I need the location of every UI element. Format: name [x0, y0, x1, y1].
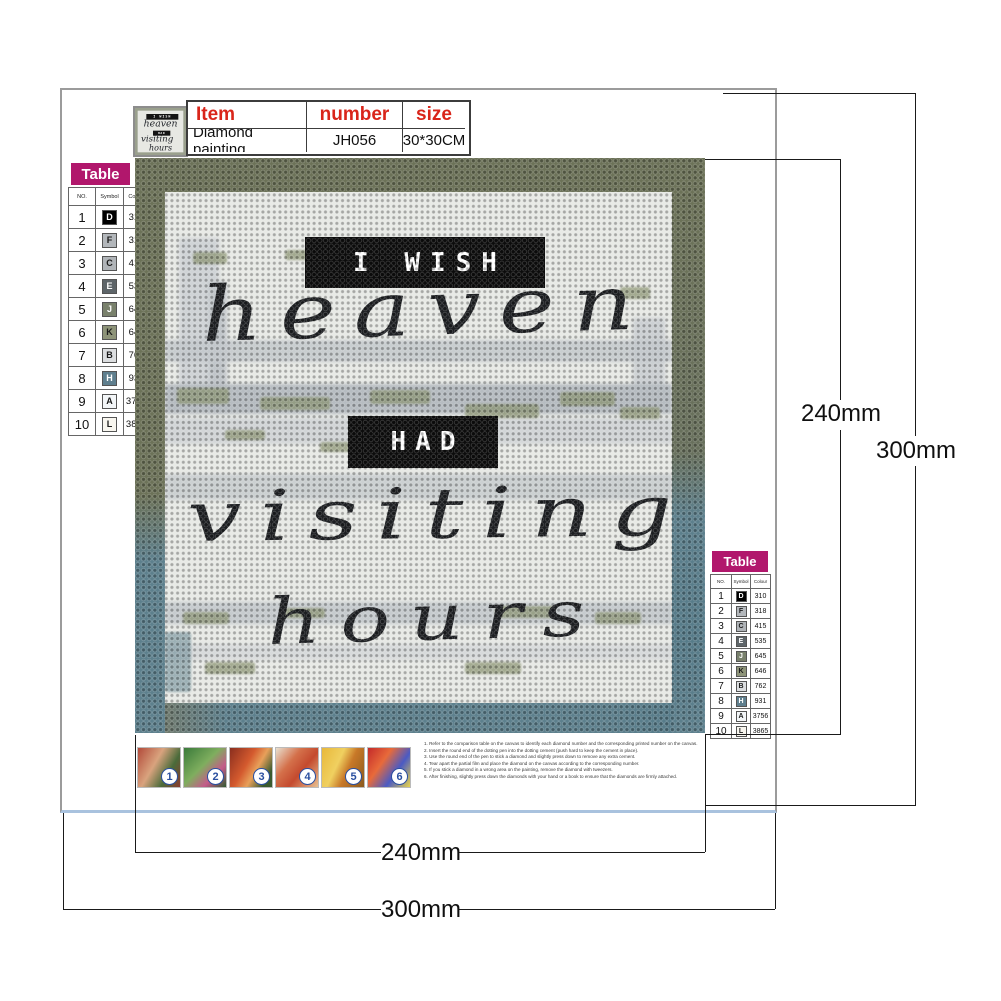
color-row-number: 2: [711, 604, 731, 618]
color-row-number: 3: [711, 619, 731, 633]
color-row-symbol-cell: K: [731, 664, 750, 678]
dim-240w-riser-left: [135, 735, 136, 852]
symbol-swatch: E: [102, 279, 117, 294]
item-value: Diamond painting: [188, 129, 307, 152]
instruction-line: 6. After finishing, slightly press down …: [424, 774, 706, 781]
symbol-swatch: A: [102, 394, 117, 409]
color-row-code: 645: [750, 649, 770, 663]
color-row-number: 4: [711, 634, 731, 648]
color-row-code: 762: [750, 679, 770, 693]
number-header: number: [307, 102, 403, 129]
color-row: 6K646: [711, 663, 770, 678]
dim-300h-line-upper: [915, 93, 916, 436]
symbol-swatch: C: [102, 256, 117, 271]
symbol-swatch: H: [102, 371, 117, 386]
item-header: Item: [188, 102, 307, 129]
symbol-swatch: L: [102, 417, 117, 432]
dim-300w-line-left: [63, 909, 381, 910]
step-number-badge: 2: [207, 768, 224, 785]
item-info-table: Item number size Diamond painting JH056 …: [186, 100, 471, 156]
size-value: 30*30CM: [403, 129, 465, 152]
symbol-swatch: H: [736, 696, 747, 707]
color-row: 9A3756: [711, 708, 770, 723]
color-table-left-title: Table: [71, 163, 130, 185]
color-row-number: 10: [711, 724, 731, 738]
bead-grid-overlay: [135, 158, 705, 733]
symbol-swatch: F: [736, 606, 747, 617]
instruction-line: 4. Tear apart the partial film and place…: [424, 761, 706, 768]
column-header: Colour: [750, 575, 770, 588]
symbol-swatch: B: [102, 348, 117, 363]
color-row-code: 3756: [750, 709, 770, 723]
dim-240w-line-left: [135, 852, 381, 853]
color-row-number: 7: [69, 344, 95, 366]
color-row-number: 9: [711, 709, 731, 723]
color-row: 5J645: [711, 648, 770, 663]
symbol-swatch: D: [102, 210, 117, 225]
instruction-list: 1. Refer to the comparison table on the …: [424, 741, 706, 781]
artwork-mini-canvas: I WISH heaven HAD visiting hours: [138, 111, 184, 153]
color-row: 7B762: [711, 678, 770, 693]
color-row-number: 9: [69, 390, 95, 412]
color-row-number: 1: [711, 589, 731, 603]
color-row-symbol-cell: C: [95, 252, 123, 274]
color-row-number: 4: [69, 275, 95, 297]
symbol-swatch: D: [736, 591, 747, 602]
step-number-badge: 1: [161, 768, 178, 785]
color-row-symbol-cell: J: [95, 298, 123, 320]
diamond-painting-canvas: I WISH heaven HAD visiting hours: [135, 158, 705, 733]
color-row-number: 6: [711, 664, 731, 678]
color-row: 4E535: [711, 633, 770, 648]
product-image: I WISH heaven HAD visiting hours Item nu…: [0, 0, 1001, 1001]
color-row-number: 8: [711, 694, 731, 708]
instruction-line: 5. If you stick a diamond in a wrong are…: [424, 767, 706, 774]
symbol-swatch: J: [736, 651, 747, 662]
color-table-right-title: Table: [712, 551, 768, 572]
column-header: NO.: [69, 188, 95, 205]
color-row-code: 310: [750, 589, 770, 603]
symbol-swatch: B: [736, 681, 747, 692]
color-row-symbol-cell: K: [95, 321, 123, 343]
color-table-right: NO.SymbolColour1D3102F3183C4154E5355J645…: [710, 574, 771, 739]
symbol-swatch: J: [102, 302, 117, 317]
color-row-code: 646: [750, 664, 770, 678]
color-row-symbol-cell: C: [731, 619, 750, 633]
color-row-symbol-cell: F: [95, 229, 123, 251]
dim-240h-cap-bottom: [705, 734, 841, 735]
step-number-badge: 4: [299, 768, 316, 785]
color-row-symbol-cell: B: [95, 344, 123, 366]
color-row-symbol-cell: D: [731, 589, 750, 603]
artwork-mini-thumbnail: I WISH heaven HAD visiting hours: [133, 106, 188, 157]
dim-240h-line-lower: [840, 430, 841, 735]
color-row-symbol-cell: H: [731, 694, 750, 708]
color-row-number: 6: [69, 321, 95, 343]
step-number-badge: 3: [253, 768, 270, 785]
color-row-code: 318: [750, 604, 770, 618]
instruction-line: 1. Refer to the comparison table on the …: [424, 741, 706, 748]
color-row-number: 8: [69, 367, 95, 389]
color-row-code: 931: [750, 694, 770, 708]
color-row-number: 1: [69, 206, 95, 228]
color-row-symbol-cell: D: [95, 206, 123, 228]
color-row: 3C415: [711, 618, 770, 633]
symbol-swatch: E: [736, 636, 747, 647]
step-number-badge: 5: [345, 768, 362, 785]
column-header: Symbol: [95, 188, 123, 205]
symbol-swatch: K: [102, 325, 117, 340]
color-row-symbol-cell: E: [95, 275, 123, 297]
number-value: JH056: [307, 129, 403, 152]
color-row-code: 3865: [750, 724, 770, 738]
step-thumbnail-2: 2: [183, 747, 227, 788]
color-row-number: 10: [69, 413, 95, 435]
dim-240h-line-upper: [840, 159, 841, 402]
color-row: 8H931: [711, 693, 770, 708]
step-thumbnail-3: 3: [229, 747, 273, 788]
dim-300h-label: 300mm: [869, 437, 963, 465]
dim-300w-riser-left: [63, 813, 64, 909]
color-row-symbol-cell: B: [731, 679, 750, 693]
dim-300w-line-right: [459, 909, 775, 910]
step-thumbnails: 123456: [137, 747, 413, 788]
dim-300h-cap-bottom: [705, 805, 916, 806]
color-row-symbol-cell: E: [731, 634, 750, 648]
color-row-symbol-cell: H: [95, 367, 123, 389]
symbol-swatch: A: [736, 711, 747, 722]
dim-240w-riser-right: [705, 735, 706, 852]
color-row-number: 3: [69, 252, 95, 274]
dim-300h-cap-top: [723, 93, 916, 94]
size-header: size: [403, 102, 465, 129]
color-row: 10L3865: [711, 723, 770, 738]
mini-script-hours: hours: [149, 143, 172, 152]
color-row-symbol-cell: L: [731, 724, 750, 738]
color-row-code: 415: [750, 619, 770, 633]
step-thumbnail-1: 1: [137, 747, 181, 788]
color-row-number: 7: [711, 679, 731, 693]
dim-300w-label: 300mm: [381, 896, 459, 924]
step-thumbnail-5: 5: [321, 747, 365, 788]
color-table-column-headers: NO.SymbolColour: [711, 575, 770, 588]
color-row-symbol-cell: J: [731, 649, 750, 663]
symbol-swatch: C: [736, 621, 747, 632]
color-row-symbol-cell: A: [95, 390, 123, 412]
step-thumbnail-6: 6: [367, 747, 411, 788]
dim-240h-label: 240mm: [795, 400, 887, 428]
dim-300w-riser-right: [775, 813, 776, 909]
color-row-code: 535: [750, 634, 770, 648]
dim-240w-line-right: [459, 852, 705, 853]
color-row: 2F318: [711, 603, 770, 618]
instruction-line: 3. Use the round end of the pen to stick…: [424, 754, 706, 761]
step-number-badge: 6: [391, 768, 408, 785]
column-header: NO.: [711, 575, 731, 588]
mini-script-heaven: heaven: [144, 118, 178, 129]
step-thumbnail-4: 4: [275, 747, 319, 788]
color-row-number: 5: [711, 649, 731, 663]
color-row-symbol-cell: L: [95, 413, 123, 435]
column-header: Symbol: [731, 575, 750, 588]
dim-240w-label: 240mm: [381, 839, 459, 867]
dim-240h-cap-top: [705, 159, 841, 160]
artwork-mini-scaled: I WISH heaven HAD visiting hours: [135, 108, 186, 155]
color-row-number: 2: [69, 229, 95, 251]
color-row-symbol-cell: A: [731, 709, 750, 723]
color-row-symbol-cell: F: [731, 604, 750, 618]
color-row: 1D310: [711, 588, 770, 603]
symbol-swatch: F: [102, 233, 117, 248]
dim-300h-line-lower: [915, 466, 916, 805]
color-row-number: 5: [69, 298, 95, 320]
instruction-line: 2. Insert the round end of the dotting p…: [424, 748, 706, 755]
symbol-swatch: K: [736, 666, 747, 677]
